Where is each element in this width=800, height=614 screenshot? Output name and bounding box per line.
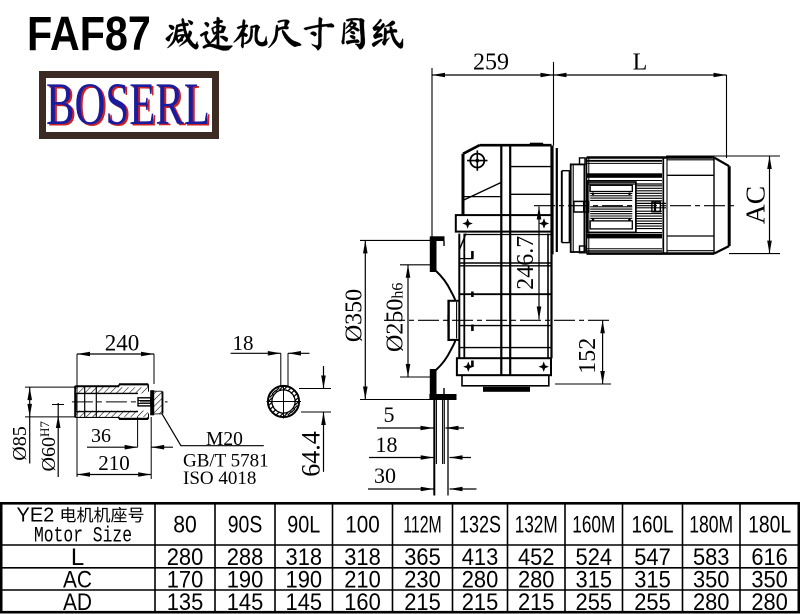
svg-text:Motor Size: Motor Size xyxy=(34,523,132,548)
svg-text:145: 145 xyxy=(286,589,323,614)
svg-text:160L: 160L xyxy=(632,511,674,538)
svg-text:80: 80 xyxy=(173,511,197,538)
svg-text:5: 5 xyxy=(384,402,395,427)
svg-text:64.4: 64.4 xyxy=(297,431,326,477)
svg-text:BOSERL: BOSERL xyxy=(46,72,210,138)
svg-text:280: 280 xyxy=(751,589,788,614)
svg-text:18: 18 xyxy=(376,432,398,457)
svg-text:132S: 132S xyxy=(459,511,501,538)
svg-text:112M: 112M xyxy=(403,511,442,538)
svg-text:L: L xyxy=(633,50,648,76)
svg-text:36: 36 xyxy=(91,425,111,447)
svg-text:255: 255 xyxy=(634,589,671,614)
svg-text:259: 259 xyxy=(473,50,509,76)
svg-text:30: 30 xyxy=(374,463,396,488)
svg-text:246.7: 246.7 xyxy=(513,236,539,290)
svg-text:AC: AC xyxy=(740,186,771,224)
svg-text:152: 152 xyxy=(575,338,601,374)
svg-text:18: 18 xyxy=(233,331,254,355)
svg-text:FAF87: FAF87 xyxy=(27,7,151,61)
svg-text:255: 255 xyxy=(576,589,613,614)
svg-text:160: 160 xyxy=(344,589,381,614)
svg-text:M20: M20 xyxy=(206,429,243,450)
svg-text:90L: 90L xyxy=(287,511,320,538)
svg-text:100: 100 xyxy=(345,511,380,538)
svg-text:90S: 90S xyxy=(228,511,263,538)
svg-text:135: 135 xyxy=(167,589,204,614)
svg-text:215: 215 xyxy=(404,589,441,614)
svg-text:215: 215 xyxy=(462,589,499,614)
svg-text:132M: 132M xyxy=(515,511,558,538)
svg-text:160M: 160M xyxy=(572,511,615,538)
svg-text:180M: 180M xyxy=(689,511,733,538)
svg-text:280: 280 xyxy=(693,589,730,614)
svg-text:145: 145 xyxy=(227,589,264,614)
svg-text:Ø85: Ø85 xyxy=(9,426,31,460)
svg-text:210: 210 xyxy=(98,451,130,475)
svg-text:ISO 4018: ISO 4018 xyxy=(183,468,256,489)
svg-text:240: 240 xyxy=(105,331,140,356)
svg-text:180L: 180L xyxy=(748,511,791,538)
svg-text:Ø350: Ø350 xyxy=(342,289,368,342)
svg-text:215: 215 xyxy=(518,589,555,614)
svg-text:AD: AD xyxy=(63,589,92,614)
